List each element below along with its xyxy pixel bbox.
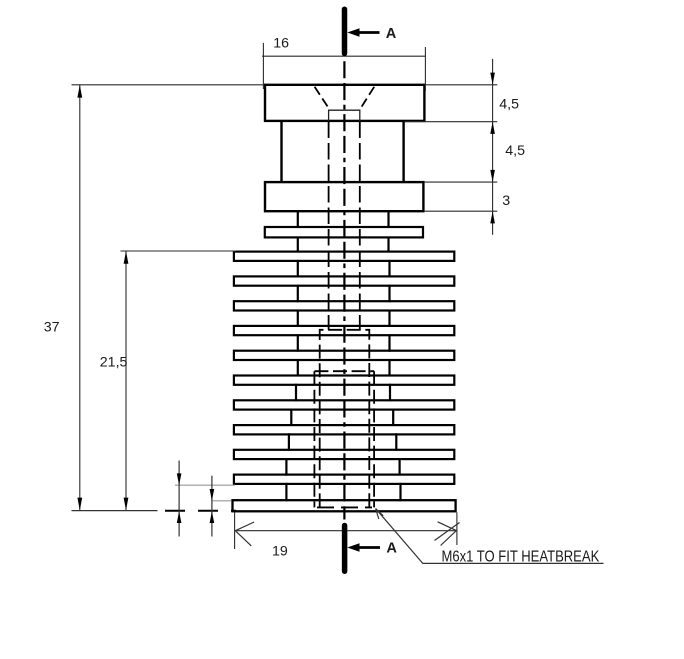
svg-text:16: 16 [273,36,289,52]
svg-text:M6x1 TO FIT HEATBREAK: M6x1 TO FIT HEATBREAK [442,548,600,565]
svg-text:A: A [386,26,397,42]
svg-text:19: 19 [272,544,288,560]
svg-text:37: 37 [44,320,60,336]
svg-text:3: 3 [502,193,510,209]
svg-text:4,5: 4,5 [505,143,525,159]
svg-text:A: A [386,541,397,557]
svg-text:21,5: 21,5 [100,354,128,370]
svg-text:4,5: 4,5 [499,97,519,113]
